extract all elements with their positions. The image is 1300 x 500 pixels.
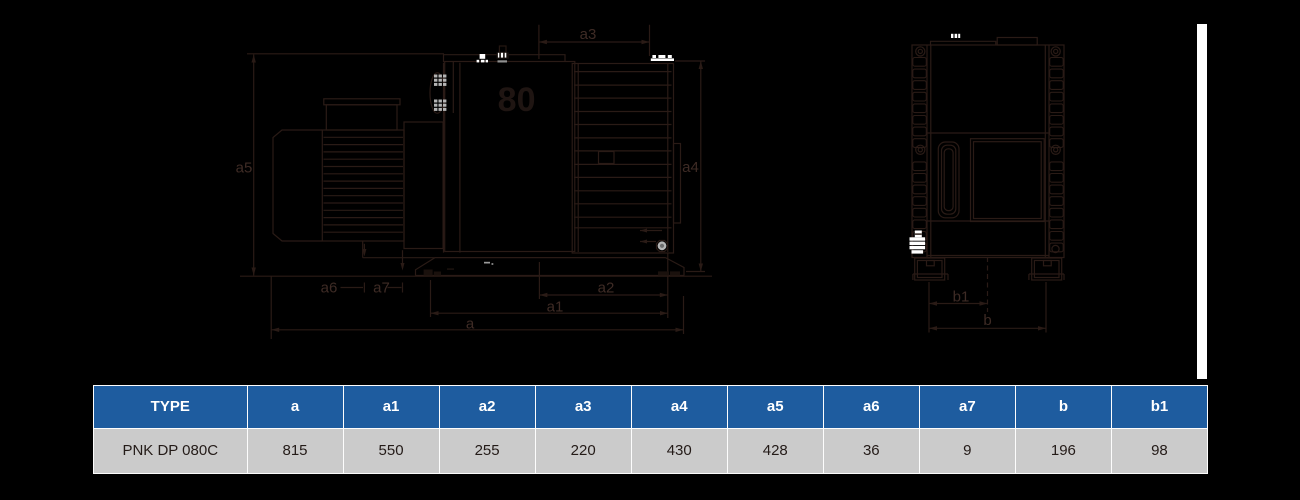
svg-text:80: 80 xyxy=(498,81,536,119)
svg-text:a6: a6 xyxy=(321,280,338,297)
svg-text:a: a xyxy=(466,316,475,333)
svg-text:a7: a7 xyxy=(373,280,390,297)
svg-text:a3: a3 xyxy=(580,26,597,43)
svg-text:b: b xyxy=(983,312,991,329)
svg-text:a1: a1 xyxy=(547,299,564,316)
svg-text:a4: a4 xyxy=(682,159,699,176)
svg-text:a5: a5 xyxy=(236,160,253,177)
svg-text:a2: a2 xyxy=(598,280,615,297)
svg-text:b1: b1 xyxy=(953,289,970,306)
